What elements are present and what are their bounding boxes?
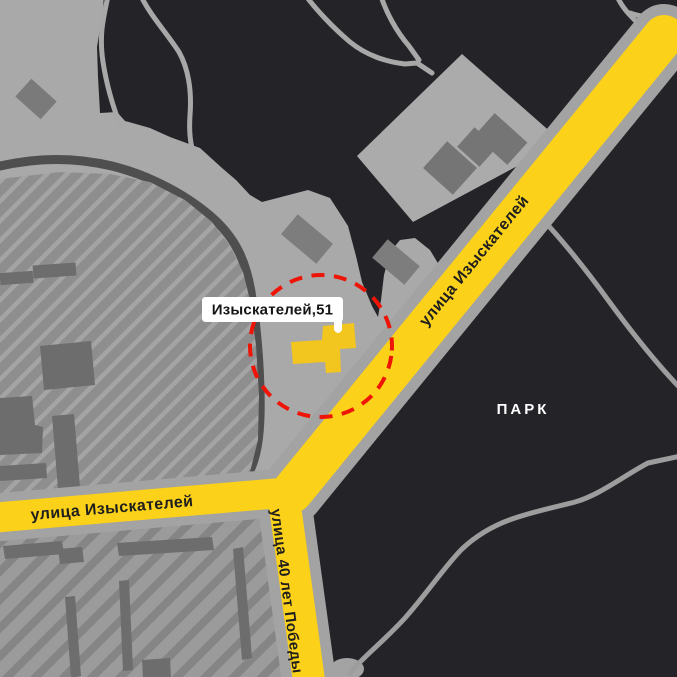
park-label: ПАРК <box>497 401 550 418</box>
building <box>142 658 171 677</box>
address-label-text: Изыскателей,51 <box>212 302 333 319</box>
map-canvas[interactable]: улица Изыскателей улица Изыскателей улиц… <box>0 0 677 677</box>
building <box>58 547 84 564</box>
building <box>40 341 95 390</box>
building <box>0 271 33 285</box>
building <box>0 463 47 481</box>
